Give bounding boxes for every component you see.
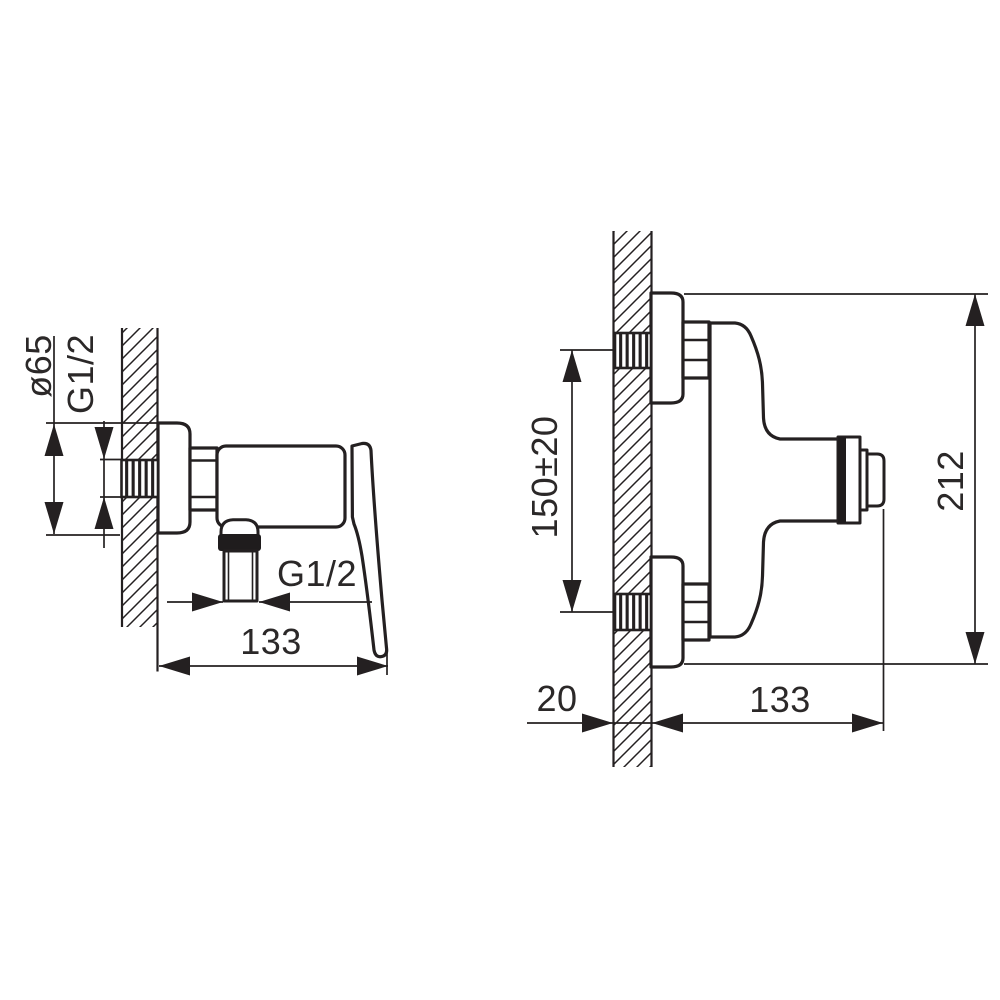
- front-top-nut: [683, 322, 709, 378]
- side-outlet-pipe: [224, 551, 257, 601]
- front-mixer-body: [710, 323, 840, 637]
- side-dim-depth: 133: [159, 621, 388, 676]
- side-mounting-nut: [190, 448, 217, 510]
- front-depth-label: 133: [749, 679, 811, 720]
- front-wall-thickness-label: 20: [536, 678, 577, 719]
- front-bottom-escutcheon: [651, 557, 683, 667]
- side-view: ø65 G1/2 G1/2 133: [18, 328, 388, 676]
- side-dim-inlet-thread: G1/2: [60, 334, 123, 548]
- front-cartridge-knob: [838, 437, 884, 523]
- front-dim-connection-spacing: 150±20: [524, 350, 614, 612]
- front-view: 150±20 212 20 133: [524, 231, 988, 767]
- front-overall-height-label: 212: [930, 450, 971, 512]
- side-escutcheon: [158, 423, 190, 533]
- front-bottom-thread: [615, 594, 651, 630]
- side-outlet-collar: [218, 534, 261, 551]
- front-top-escutcheon: [651, 293, 683, 403]
- side-lever-handle: [352, 443, 387, 656]
- drawing-canvas: ø65 G1/2 G1/2 133: [0, 0, 1000, 1000]
- front-wall-section: [613, 231, 652, 767]
- technical-drawing: ø65 G1/2 G1/2 133: [0, 0, 1000, 1000]
- side-mixer-body: [217, 446, 345, 527]
- front-connection-spacing-label: 150±20: [524, 416, 565, 539]
- side-wall-section: [122, 328, 158, 672]
- front-top-thread: [615, 333, 651, 368]
- side-outlet-thread-label: G1/2: [277, 553, 357, 594]
- knob-cap: [867, 454, 884, 506]
- side-inlet-thread-label: G1/2: [60, 334, 101, 414]
- knob-flange-stripe: [838, 437, 846, 523]
- side-dim-outlet-thread: G1/2: [167, 553, 372, 612]
- front-bottom-nut: [683, 584, 709, 640]
- side-depth-label: 133: [240, 621, 302, 662]
- front-wall-hatch: [613, 231, 652, 767]
- side-diameter-label: ø65: [18, 334, 59, 398]
- side-wall-thread: [122, 460, 159, 497]
